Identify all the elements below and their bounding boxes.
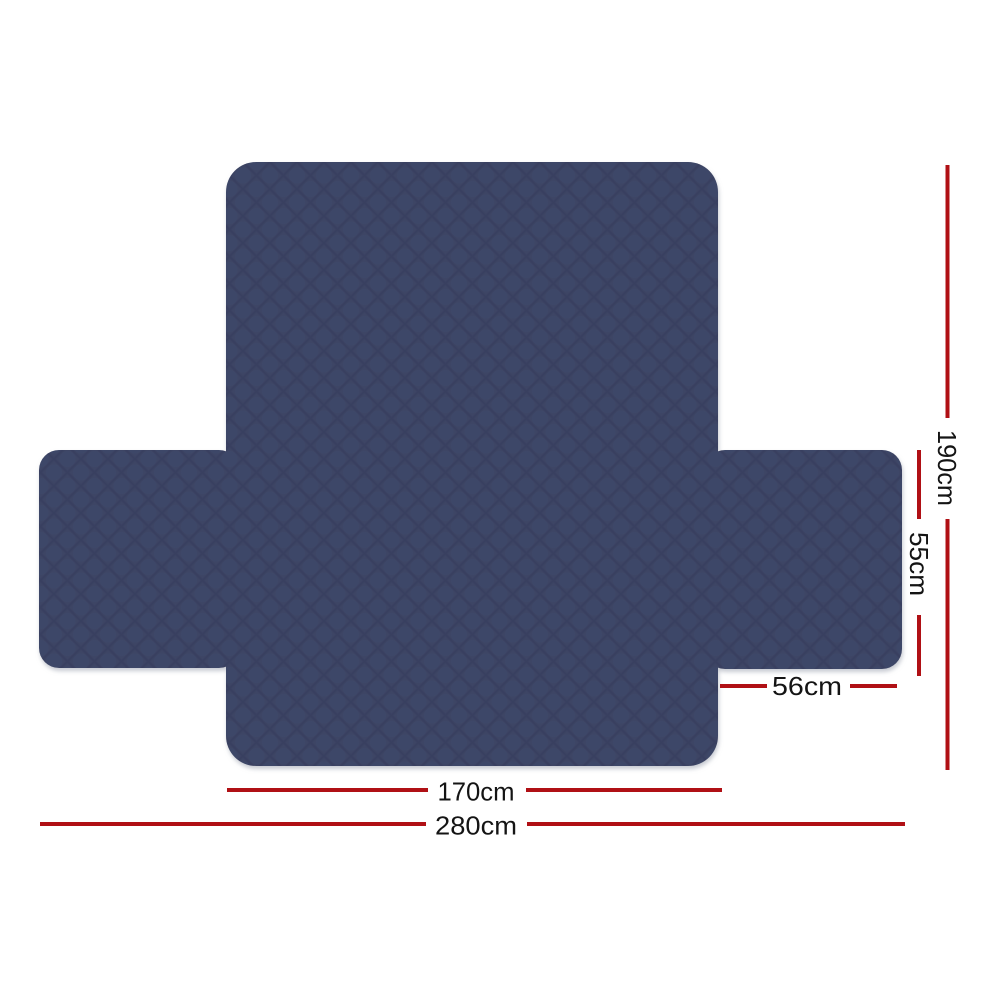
svg-text:56cm: 56cm xyxy=(772,671,842,701)
svg-text:190cm: 190cm xyxy=(932,430,962,506)
svg-text:280cm: 280cm xyxy=(435,811,517,841)
svg-text:55cm: 55cm xyxy=(904,532,934,596)
svg-text:170cm: 170cm xyxy=(438,777,515,807)
